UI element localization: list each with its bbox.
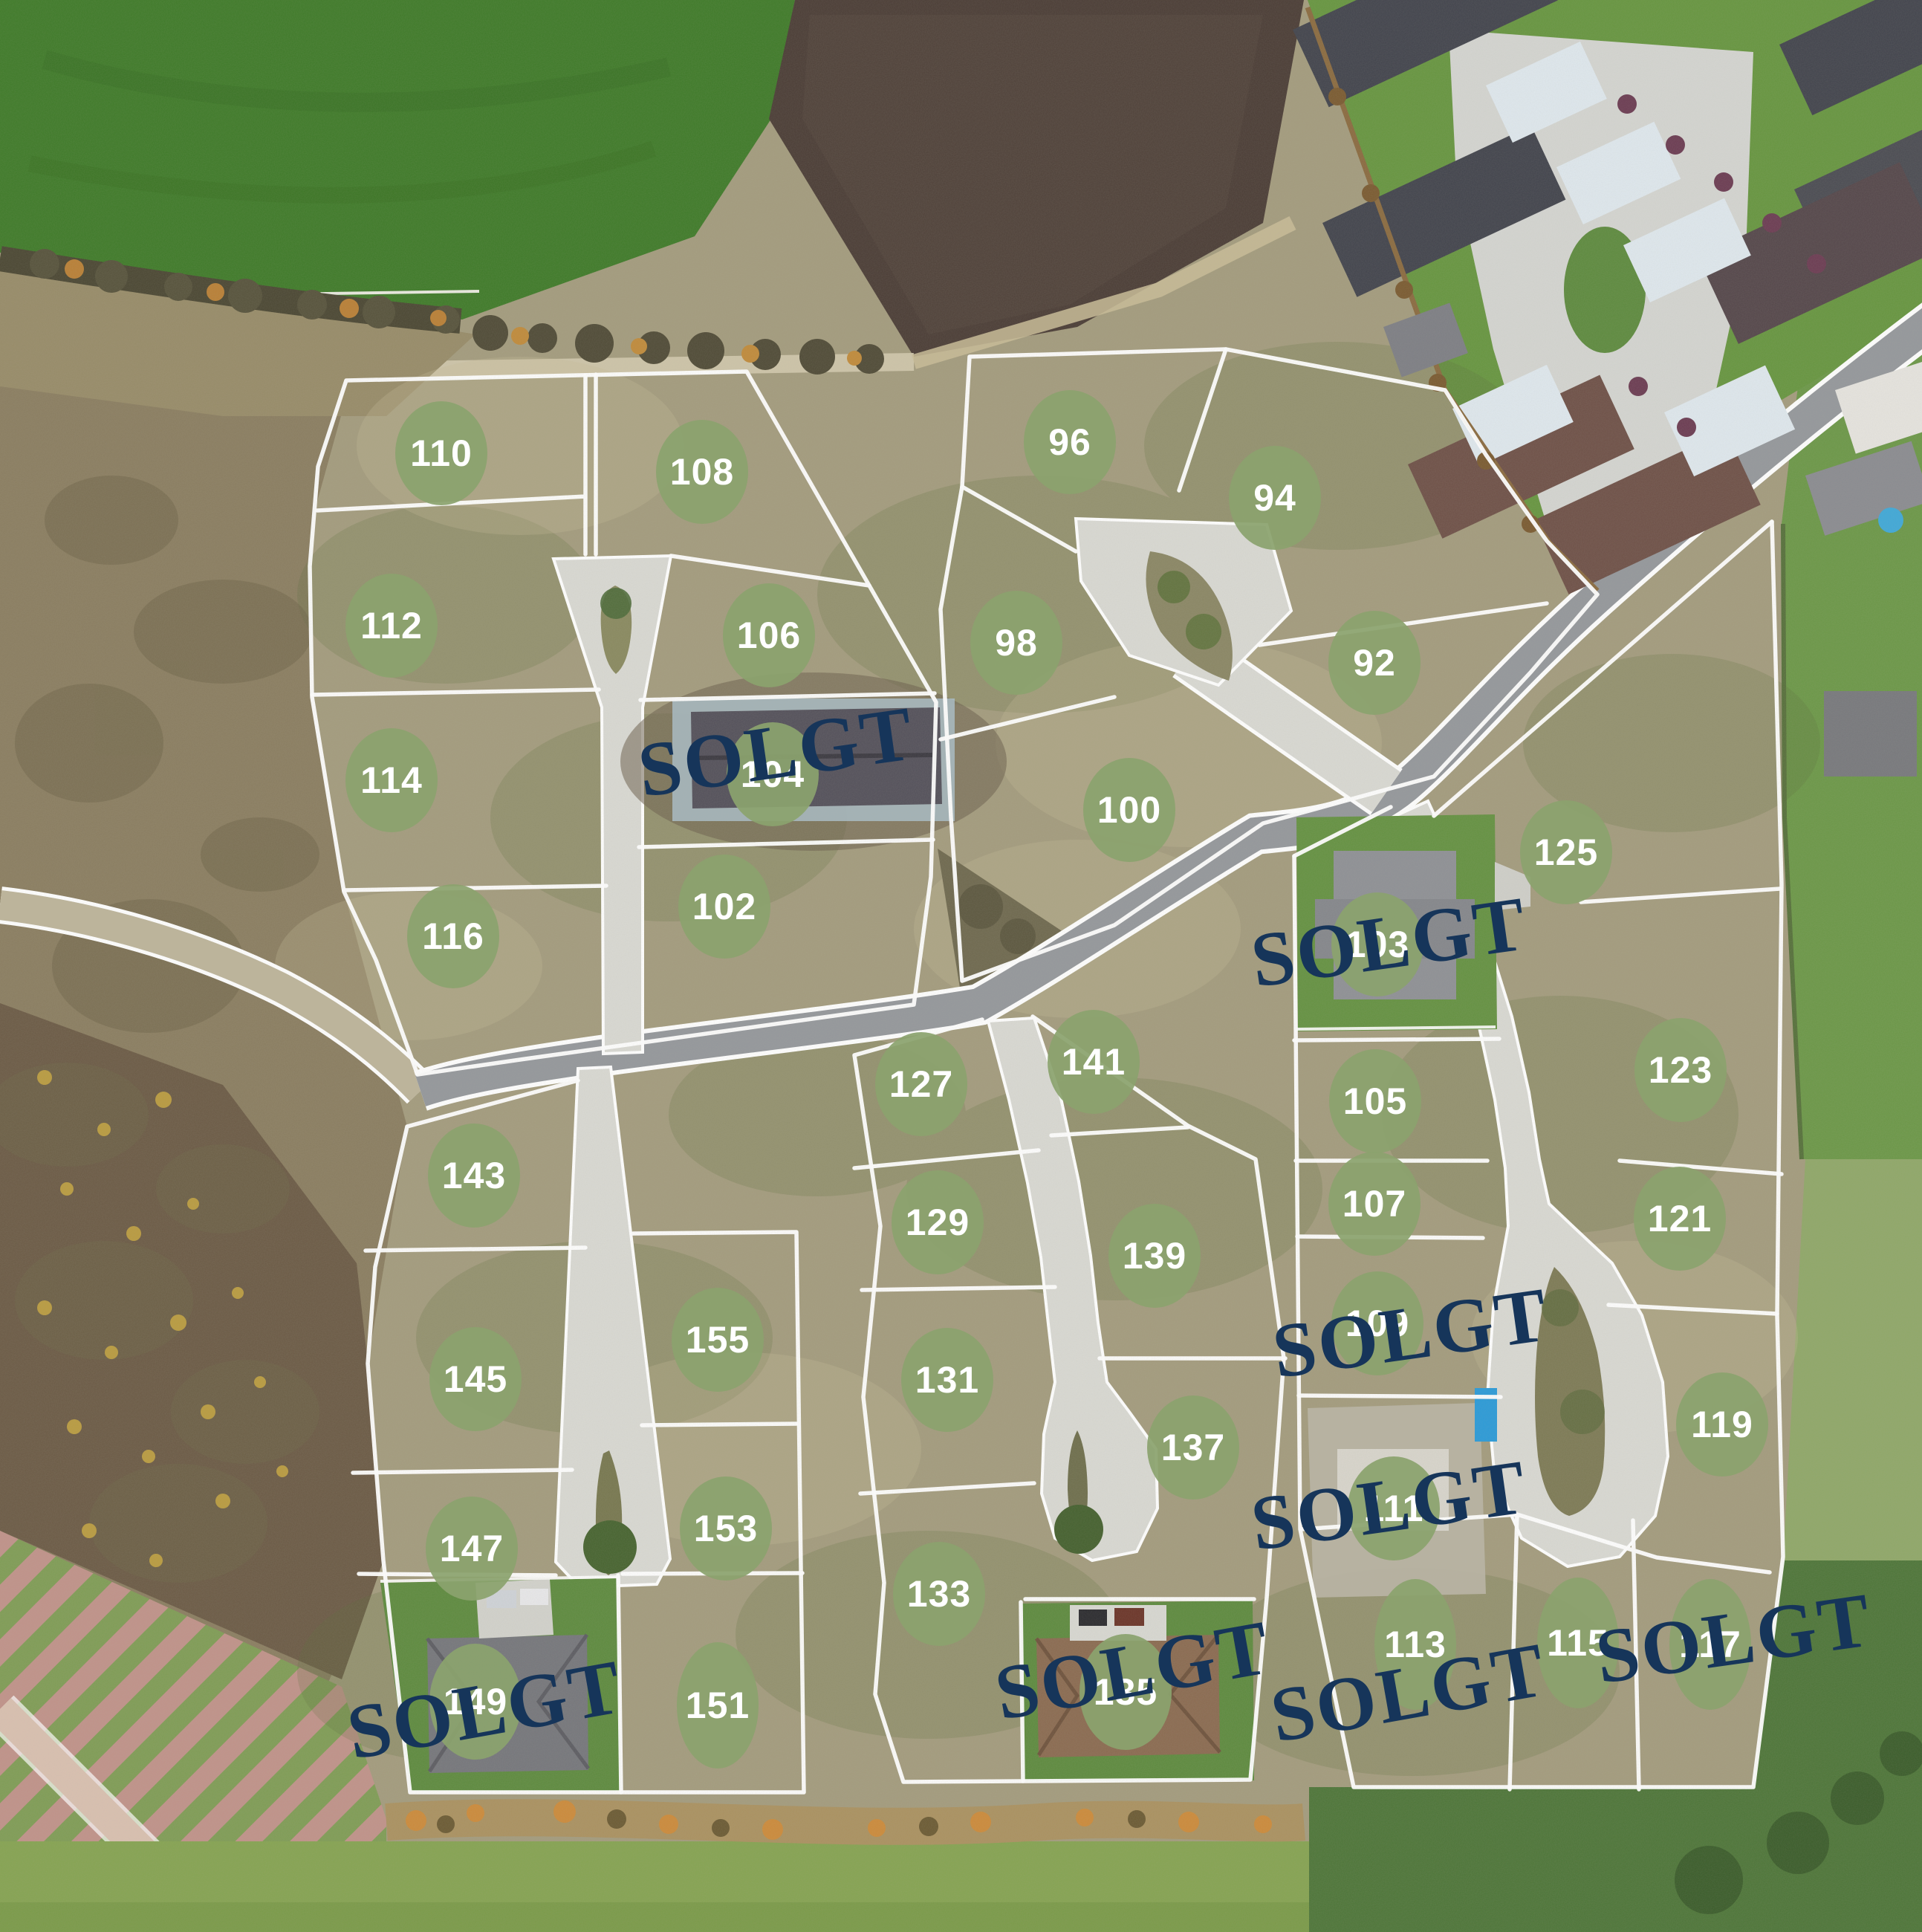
plot-marker-108[interactable]: 108	[656, 420, 748, 524]
plot-marker-137[interactable]: 137	[1147, 1395, 1239, 1500]
svg-text:125: 125	[1534, 832, 1598, 873]
plot-marker-107[interactable]: 107	[1328, 1152, 1421, 1256]
plot-marker-141[interactable]: 141	[1048, 1010, 1140, 1114]
svg-text:107: 107	[1343, 1183, 1406, 1225]
site-plan-map: 110 108 96 94 112 106 98 92 114 104 100 …	[0, 0, 1922, 1932]
svg-text:141: 141	[1062, 1041, 1126, 1083]
svg-text:123: 123	[1649, 1049, 1712, 1091]
plot-marker-127[interactable]: 127	[875, 1032, 967, 1136]
plot-marker-96[interactable]: 96	[1024, 390, 1116, 494]
plot-marker-139[interactable]: 139	[1108, 1204, 1201, 1308]
svg-text:102: 102	[692, 886, 756, 927]
svg-text:133: 133	[907, 1573, 971, 1615]
plot-marker-147[interactable]: 147	[426, 1497, 518, 1601]
plot-marker-92[interactable]: 92	[1328, 611, 1421, 715]
plot-marker-145[interactable]: 145	[429, 1327, 522, 1431]
svg-text:105: 105	[1343, 1080, 1407, 1122]
plot-marker-105[interactable]: 105	[1329, 1049, 1421, 1153]
svg-text:121: 121	[1648, 1198, 1712, 1239]
plot-marker-110[interactable]: 110	[395, 401, 487, 505]
svg-text:100: 100	[1097, 789, 1161, 831]
plot-marker-153[interactable]: 153	[680, 1476, 772, 1581]
svg-text:143: 143	[442, 1155, 506, 1196]
plot-marker-94[interactable]: 94	[1229, 446, 1321, 550]
plot-marker-98[interactable]: 98	[970, 591, 1062, 695]
svg-text:153: 153	[694, 1508, 758, 1549]
plot-marker-129[interactable]: 129	[892, 1170, 984, 1274]
plot-marker-151[interactable]: 151	[677, 1642, 759, 1769]
svg-text:94: 94	[1253, 477, 1296, 519]
plot-marker-125[interactable]: 125	[1520, 800, 1612, 904]
aerial-map-svg: 110 108 96 94 112 106 98 92 114 104 100 …	[0, 0, 1922, 1932]
svg-text:151: 151	[686, 1685, 750, 1726]
plot-marker-123[interactable]: 123	[1634, 1018, 1727, 1122]
svg-text:129: 129	[906, 1202, 970, 1243]
svg-text:131: 131	[915, 1359, 979, 1401]
plot-marker-131[interactable]: 131	[901, 1328, 993, 1432]
plot-marker-114[interactable]: 114	[345, 728, 438, 832]
svg-text:119: 119	[1691, 1404, 1753, 1445]
svg-text:92: 92	[1353, 642, 1396, 684]
plot-marker-106[interactable]: 106	[723, 583, 815, 687]
svg-text:112: 112	[360, 605, 423, 646]
svg-text:127: 127	[889, 1063, 953, 1105]
svg-text:106: 106	[737, 615, 801, 656]
plot-marker-102[interactable]: 102	[678, 855, 770, 959]
svg-text:139: 139	[1123, 1235, 1186, 1277]
svg-text:108: 108	[670, 451, 734, 493]
plot-marker-133[interactable]: 133	[893, 1542, 985, 1646]
svg-text:116: 116	[422, 915, 484, 957]
svg-text:155: 155	[686, 1319, 750, 1361]
svg-text:96: 96	[1048, 421, 1091, 463]
svg-text:114: 114	[360, 759, 423, 801]
svg-text:98: 98	[995, 622, 1038, 664]
svg-text:137: 137	[1161, 1427, 1225, 1468]
svg-text:145: 145	[444, 1358, 507, 1400]
plot-marker-116[interactable]: 116	[407, 884, 499, 988]
plot-marker-119[interactable]: 119	[1676, 1372, 1768, 1476]
plot-marker-155[interactable]: 155	[672, 1288, 764, 1392]
svg-text:110: 110	[410, 432, 473, 474]
plot-marker-143[interactable]: 143	[428, 1124, 520, 1228]
plot-marker-121[interactable]: 121	[1634, 1167, 1726, 1271]
plot-marker-112[interactable]: 112	[345, 574, 438, 678]
svg-text:147: 147	[440, 1528, 504, 1569]
plot-marker-100[interactable]: 100	[1083, 758, 1175, 862]
